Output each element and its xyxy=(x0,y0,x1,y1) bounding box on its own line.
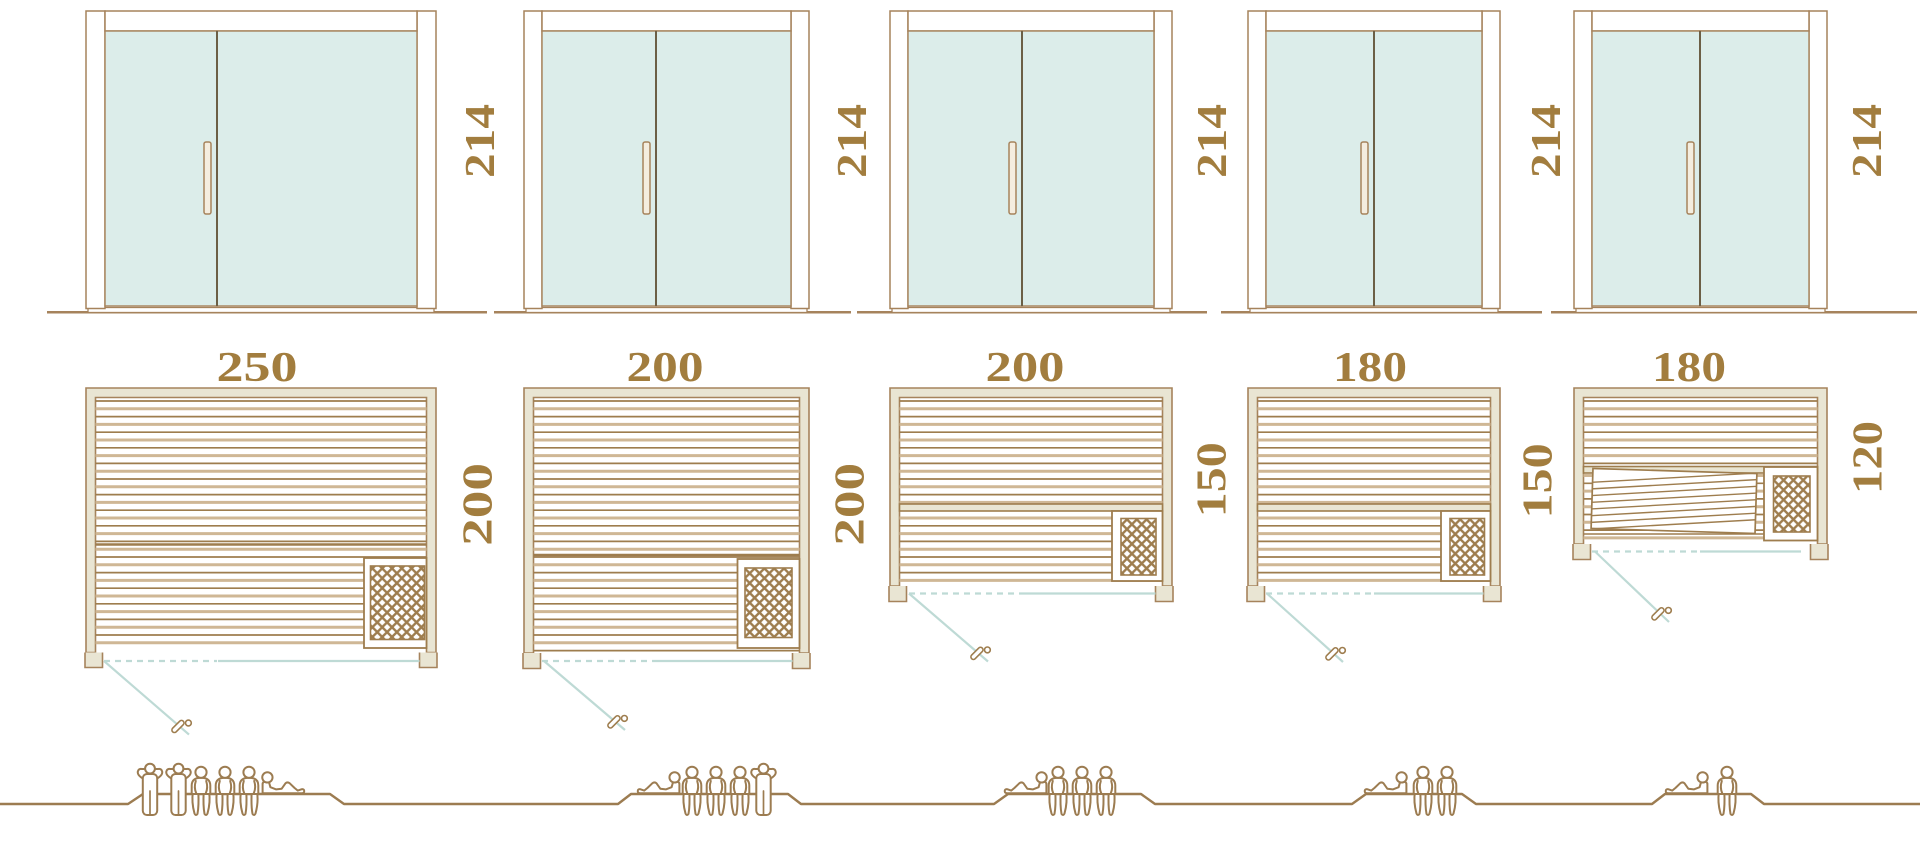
svg-text:180: 180 xyxy=(1652,344,1726,391)
svg-text:180: 180 xyxy=(1333,344,1407,391)
svg-text:120: 120 xyxy=(1845,421,1892,494)
svg-text:214: 214 xyxy=(1189,104,1236,178)
svg-text:200: 200 xyxy=(827,463,874,546)
svg-text:150: 150 xyxy=(1188,442,1235,517)
svg-text:150: 150 xyxy=(1515,443,1562,518)
svg-text:214: 214 xyxy=(1523,104,1570,178)
svg-text:200: 200 xyxy=(455,463,502,546)
svg-text:250: 250 xyxy=(217,344,298,391)
svg-text:214: 214 xyxy=(457,104,504,178)
svg-text:200: 200 xyxy=(986,344,1065,391)
svg-text:214: 214 xyxy=(829,104,876,178)
svg-text:200: 200 xyxy=(627,344,704,391)
svg-text:214: 214 xyxy=(1844,104,1891,178)
